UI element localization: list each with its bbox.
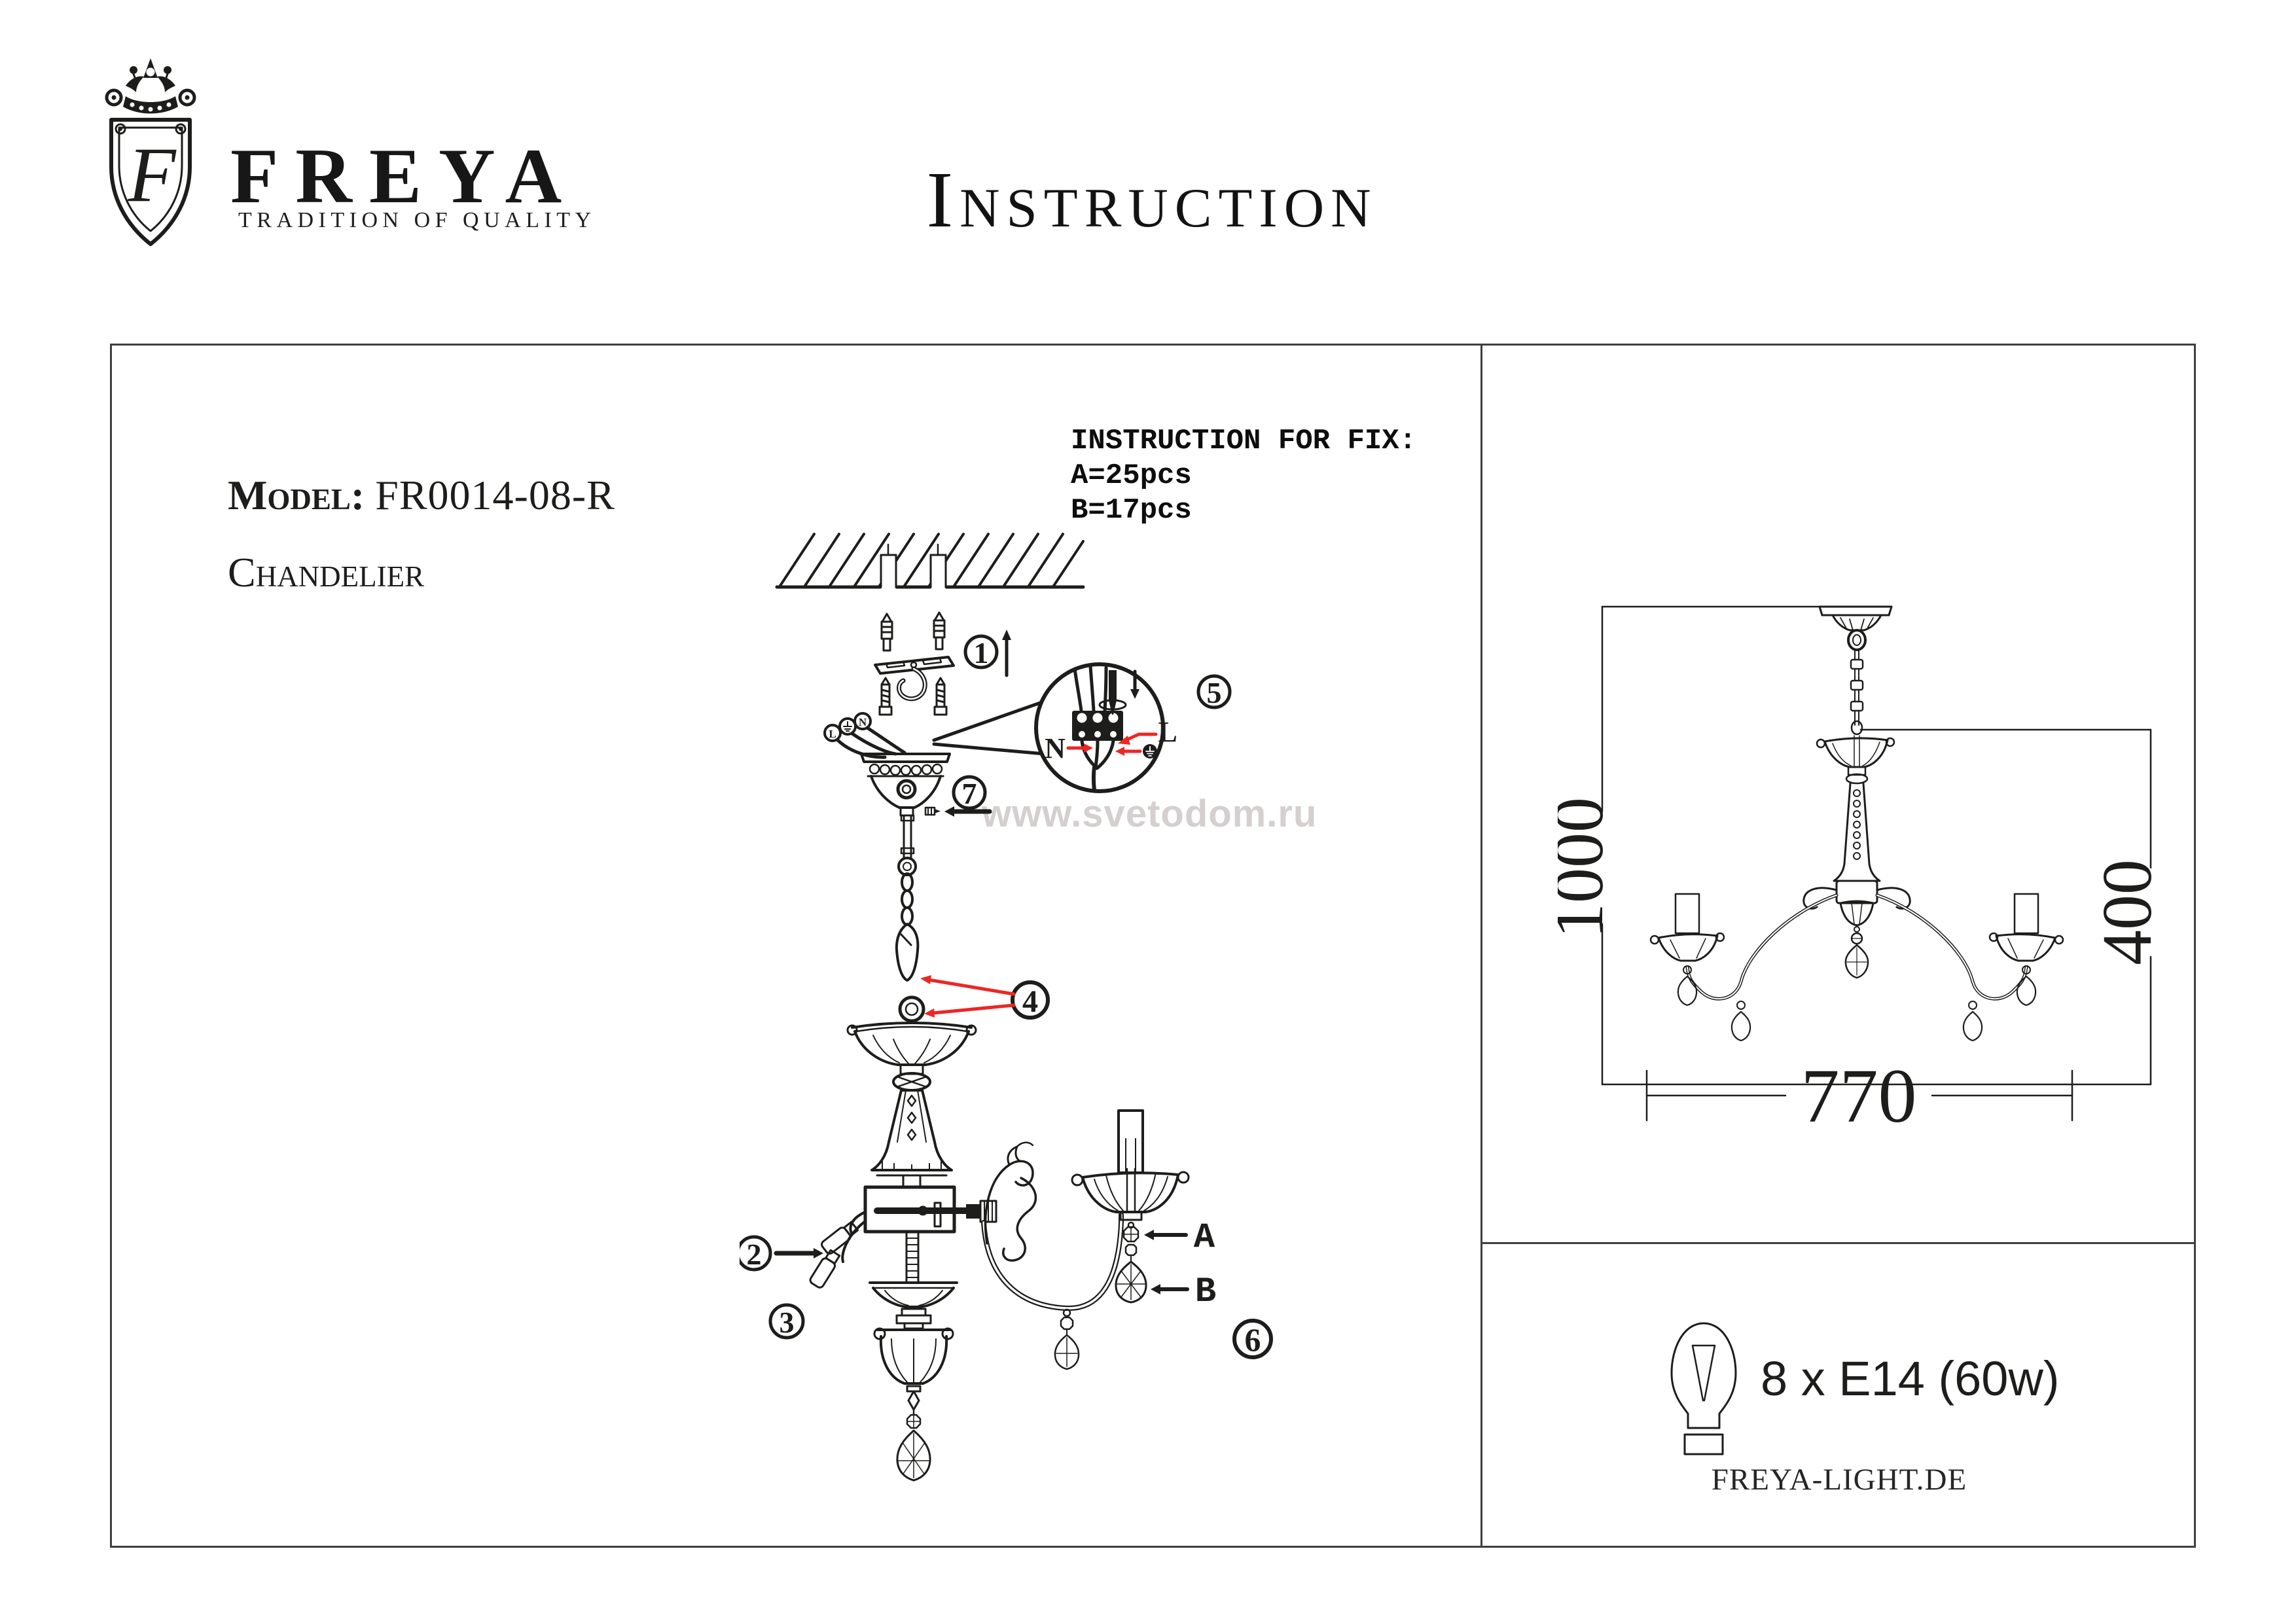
ceiling-canopy <box>861 754 950 815</box>
model-number: FR0014-08-R <box>375 472 615 518</box>
dimension-diagram: 1000 400 770 <box>1558 563 2199 1152</box>
callout-6: 6 <box>1234 1321 1271 1358</box>
part-label-a: A <box>1144 1218 1215 1258</box>
svg-text:7: 7 <box>962 777 977 810</box>
callout-5: 5 <box>1198 676 1230 709</box>
brand-tagline: TRADITION OF QUALITY <box>238 208 596 233</box>
wire-label-n: N <box>1045 732 1066 764</box>
candle-cup <box>1072 1169 1189 1220</box>
supply-wires: L N <box>825 713 905 757</box>
ceiling-hatch <box>777 534 1083 587</box>
svg-text:5: 5 <box>1207 676 1222 709</box>
wall-plug-icon <box>882 613 944 651</box>
ground-terminal-icon <box>1143 744 1157 758</box>
lamp-spec: 8 x E14 (60w) <box>1761 1351 2060 1406</box>
fix-note-title: INSTRUCTION FOR FIX: <box>1071 424 1416 459</box>
callout-7: 7 <box>925 777 990 817</box>
svg-text:6: 6 <box>1245 1321 1261 1358</box>
chandelier-arm <box>984 1111 1189 1369</box>
arm-pendant <box>1055 1310 1079 1369</box>
centre-column <box>848 997 976 1187</box>
screw-icon <box>880 678 946 715</box>
model-line: Model: FR0014-08-R <box>228 457 615 534</box>
bottom-stack <box>870 1283 957 1480</box>
dim-body-height: 400 <box>2089 859 2166 965</box>
fix-note-a: A=25pcs <box>1071 459 1416 493</box>
chandelier-outline <box>1651 607 2063 1041</box>
svg-text:L: L <box>829 728 836 740</box>
model-label: Model: <box>228 472 365 518</box>
instruction-sheet: F FREYA TRADITION OF QUALITY Instruction… <box>0 0 2296 1623</box>
brand-website: FREYA-LIGHT.DE <box>1702 1462 1977 1497</box>
page-title: Instruction <box>785 154 1518 246</box>
mounting-bracket <box>875 657 954 699</box>
callout-2: 2 <box>740 1237 823 1271</box>
product-type: Chandelier <box>228 534 615 611</box>
svg-text:N: N <box>859 716 867 728</box>
callout-4: 4 <box>920 975 1048 1019</box>
svg-text:B: B <box>1195 1272 1216 1312</box>
svg-text:3: 3 <box>780 1306 795 1339</box>
bulb-icon <box>1662 1309 1748 1466</box>
wiring-detail-bubble: N L <box>934 664 1177 791</box>
svg-text:A: A <box>1194 1218 1215 1258</box>
svg-text:1: 1 <box>974 636 989 669</box>
ground-icon <box>844 722 852 731</box>
svg-text:4: 4 <box>1022 984 1038 1019</box>
svg-text:2: 2 <box>747 1238 762 1271</box>
assembly-diagram: 1 L N <box>740 510 1316 1505</box>
model-block: Model: FR0014-08-R Chandelier <box>228 457 615 611</box>
red-pointer-arrows <box>920 975 1014 1018</box>
dim-width: 770 <box>1801 1053 1917 1139</box>
horizontal-divider <box>1482 1242 2196 1244</box>
hanging-rod-chain <box>897 815 918 980</box>
vertical-divider <box>1480 344 1482 1548</box>
candle-sleeve <box>1119 1111 1143 1173</box>
wire-label-l: L <box>1158 716 1177 748</box>
callout-1: 1 <box>965 630 1011 675</box>
junction-box <box>865 1187 996 1283</box>
brand-monogram: F <box>127 131 177 218</box>
dim-overall-height: 1000 <box>1558 797 1618 938</box>
callout-3: 3 <box>770 1305 803 1339</box>
dimension-lines <box>1602 607 2151 1120</box>
freya-crest-icon: F <box>92 56 209 252</box>
part-label-b: B <box>1151 1272 1216 1312</box>
